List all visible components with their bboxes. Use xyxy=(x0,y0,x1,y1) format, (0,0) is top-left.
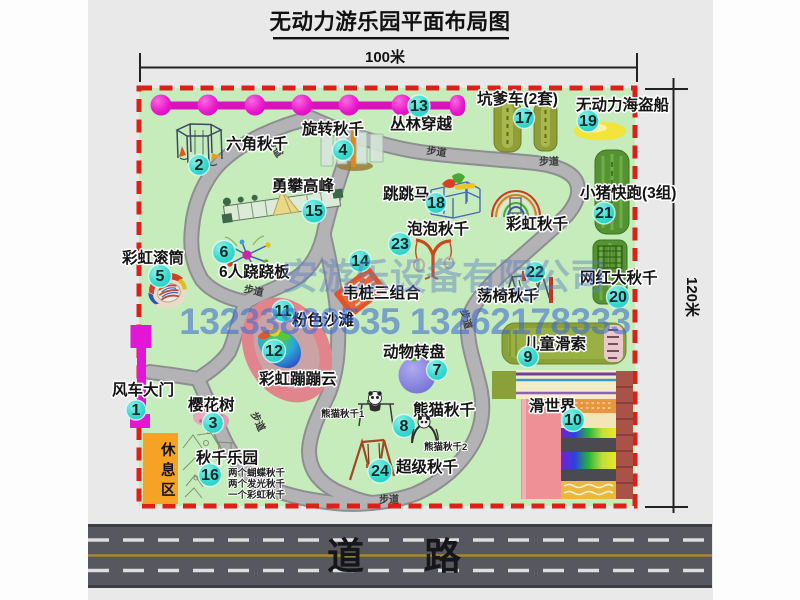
svg-text:熊猫秋千1: 熊猫秋千1 xyxy=(321,408,365,420)
svg-text:休: 休 xyxy=(160,441,176,459)
svg-text:23: 23 xyxy=(391,236,409,253)
svg-text:动物转盘: 动物转盘 xyxy=(383,342,446,361)
svg-text:13233800535 13262178333: 13233800535 13262178333 xyxy=(179,301,631,342)
svg-text:24: 24 xyxy=(371,463,389,480)
svg-text:小猪快跑(3组): 小猪快跑(3组) xyxy=(580,183,676,202)
svg-text:旋转秋千: 旋转秋千 xyxy=(301,119,365,138)
svg-text:风车大门: 风车大门 xyxy=(112,380,174,399)
svg-text:熊猫秋千2: 熊猫秋千2 xyxy=(424,441,467,453)
svg-text:泡泡秋千: 泡泡秋千 xyxy=(407,219,470,238)
svg-text:17: 17 xyxy=(515,110,533,127)
svg-text:彩虹秋千: 彩虹秋千 xyxy=(505,214,569,233)
svg-text:安游乐设备有限公司: 安游乐设备有限公司 xyxy=(282,256,606,297)
svg-text:21: 21 xyxy=(595,205,613,222)
svg-text:道路: 道路 xyxy=(327,536,521,577)
svg-text:一个彩虹秋千: 一个彩虹秋千 xyxy=(228,489,286,501)
svg-text:无动力游乐园平面布局图: 无动力游乐园平面布局图 xyxy=(270,9,511,34)
svg-text:16: 16 xyxy=(201,467,219,484)
svg-text:1: 1 xyxy=(132,402,141,419)
svg-text:120米: 120米 xyxy=(683,277,701,318)
svg-text:超级秋千: 超级秋千 xyxy=(395,457,459,476)
svg-text:12: 12 xyxy=(265,343,283,360)
svg-text:6人跷跷板: 6人跷跷板 xyxy=(219,262,290,281)
svg-text:18: 18 xyxy=(427,195,445,212)
svg-text:樱花树: 樱花树 xyxy=(188,395,235,414)
svg-text:8: 8 xyxy=(400,418,409,435)
svg-text:区: 区 xyxy=(161,482,176,499)
svg-text:5: 5 xyxy=(156,268,165,285)
svg-text:跳跳马: 跳跳马 xyxy=(383,184,430,203)
svg-text:两个发光秋千: 两个发光秋千 xyxy=(228,478,286,490)
svg-text:19: 19 xyxy=(579,113,597,130)
svg-text:10: 10 xyxy=(564,412,582,429)
svg-text:六角秋千: 六角秋千 xyxy=(226,134,289,153)
svg-text:息: 息 xyxy=(161,461,176,479)
svg-text:15: 15 xyxy=(305,203,323,220)
svg-text:13: 13 xyxy=(410,98,428,115)
svg-text:步道: 步道 xyxy=(539,155,559,168)
svg-text:9: 9 xyxy=(524,349,533,366)
svg-text:2: 2 xyxy=(195,157,204,174)
svg-text:6: 6 xyxy=(220,244,229,261)
svg-text:4: 4 xyxy=(339,142,348,159)
svg-text:100米: 100米 xyxy=(365,48,406,66)
svg-text:彩虹蹦蹦云: 彩虹蹦蹦云 xyxy=(258,369,337,388)
svg-text:7: 7 xyxy=(433,362,442,379)
svg-text:勇攀高峰: 勇攀高峰 xyxy=(272,176,335,195)
svg-text:坑爹车(2套): 坑爹车(2套) xyxy=(477,89,558,108)
svg-text:彩虹滚筒: 彩虹滚筒 xyxy=(121,248,184,267)
svg-text:两个蝴蝶秋千: 两个蝴蝶秋千 xyxy=(228,467,286,479)
svg-text:3: 3 xyxy=(209,415,218,432)
